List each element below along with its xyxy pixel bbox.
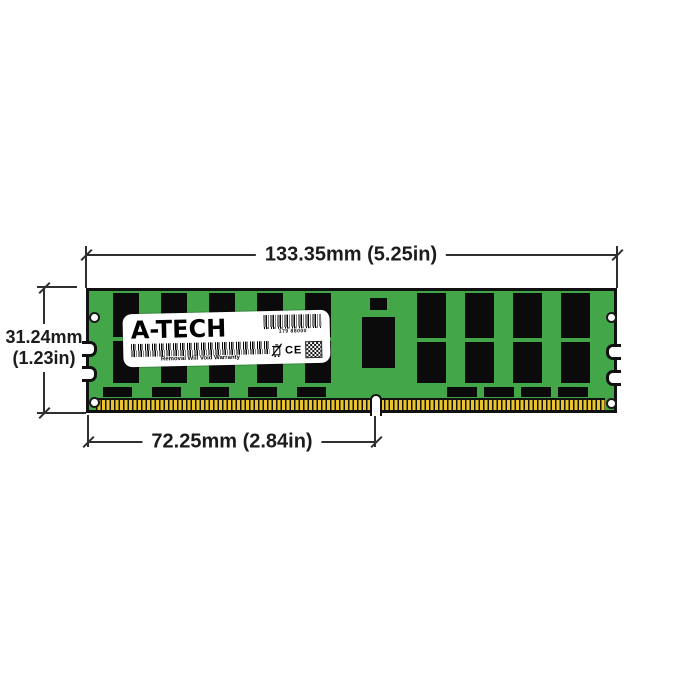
memory-chip-icon [465, 293, 494, 338]
edge-notch-icon [82, 341, 97, 357]
memory-chip-icon [561, 342, 590, 383]
edge-notch-icon [606, 370, 621, 386]
weee-bin-icon [271, 343, 282, 358]
width-dimension-label: 133.35mm (5.25in) [256, 244, 446, 267]
edge-notch-icon [82, 366, 97, 382]
pin-offset-dimension-label: 72.25mm (2.84in) [142, 431, 321, 454]
mounting-hole-icon [89, 312, 100, 323]
mounting-hole-icon [606, 398, 617, 409]
memory-chip-icon [513, 293, 542, 338]
info-label: A-TECH 179 88000 Removal Will Void Warra… [122, 310, 330, 368]
diagram-canvas: 133.35mm (5.25in) 31.24mm (1.23in) 72.25… [0, 0, 700, 700]
memory-chip-icon [362, 317, 395, 368]
key-notch [370, 394, 382, 416]
serial-number: 179 88000 [264, 328, 322, 335]
mounting-hole-icon [89, 397, 100, 408]
height-dimension-in: (1.23in) [5, 348, 82, 369]
extension-line-left-bottom [37, 412, 86, 414]
memory-chip-icon [103, 387, 132, 397]
memory-chip-icon [200, 387, 229, 397]
memory-chip-icon [152, 387, 181, 397]
memory-chip-icon [297, 387, 326, 397]
memory-chip-icon [558, 387, 588, 397]
label-top-row: A-TECH 179 88000 [131, 314, 322, 342]
barcode-icon [263, 314, 321, 329]
memory-chip-icon [513, 342, 542, 383]
memory-chip-icon [417, 293, 446, 338]
edge-notch-icon [606, 344, 621, 360]
memory-chip-icon [521, 387, 551, 397]
memory-chip-icon [484, 387, 514, 397]
ce-mark: CE [285, 344, 303, 356]
certification-icons: CE [271, 341, 323, 359]
memory-chip-icon [465, 342, 494, 383]
gold-pins [96, 398, 605, 413]
memory-chip-icon [248, 387, 277, 397]
memory-chip-icon [561, 293, 590, 338]
memory-chip-icon [370, 298, 387, 310]
memory-chip-icon [417, 342, 446, 383]
ram-module: A-TECH 179 88000 Removal Will Void Warra… [86, 288, 617, 413]
extension-line-left-top [37, 286, 77, 288]
brand-logo: A-TECH [131, 316, 227, 343]
serial-block: 179 88000 [263, 314, 321, 335]
mounting-hole-icon [606, 312, 617, 323]
height-dimension-label: 31.24mm (1.23in) [0, 324, 87, 372]
qr-code-icon [305, 341, 322, 358]
warranty-block: Removal Will Void Warranty [131, 341, 269, 364]
memory-chip-icon [447, 387, 477, 397]
height-dimension-mm: 31.24mm [5, 327, 82, 348]
